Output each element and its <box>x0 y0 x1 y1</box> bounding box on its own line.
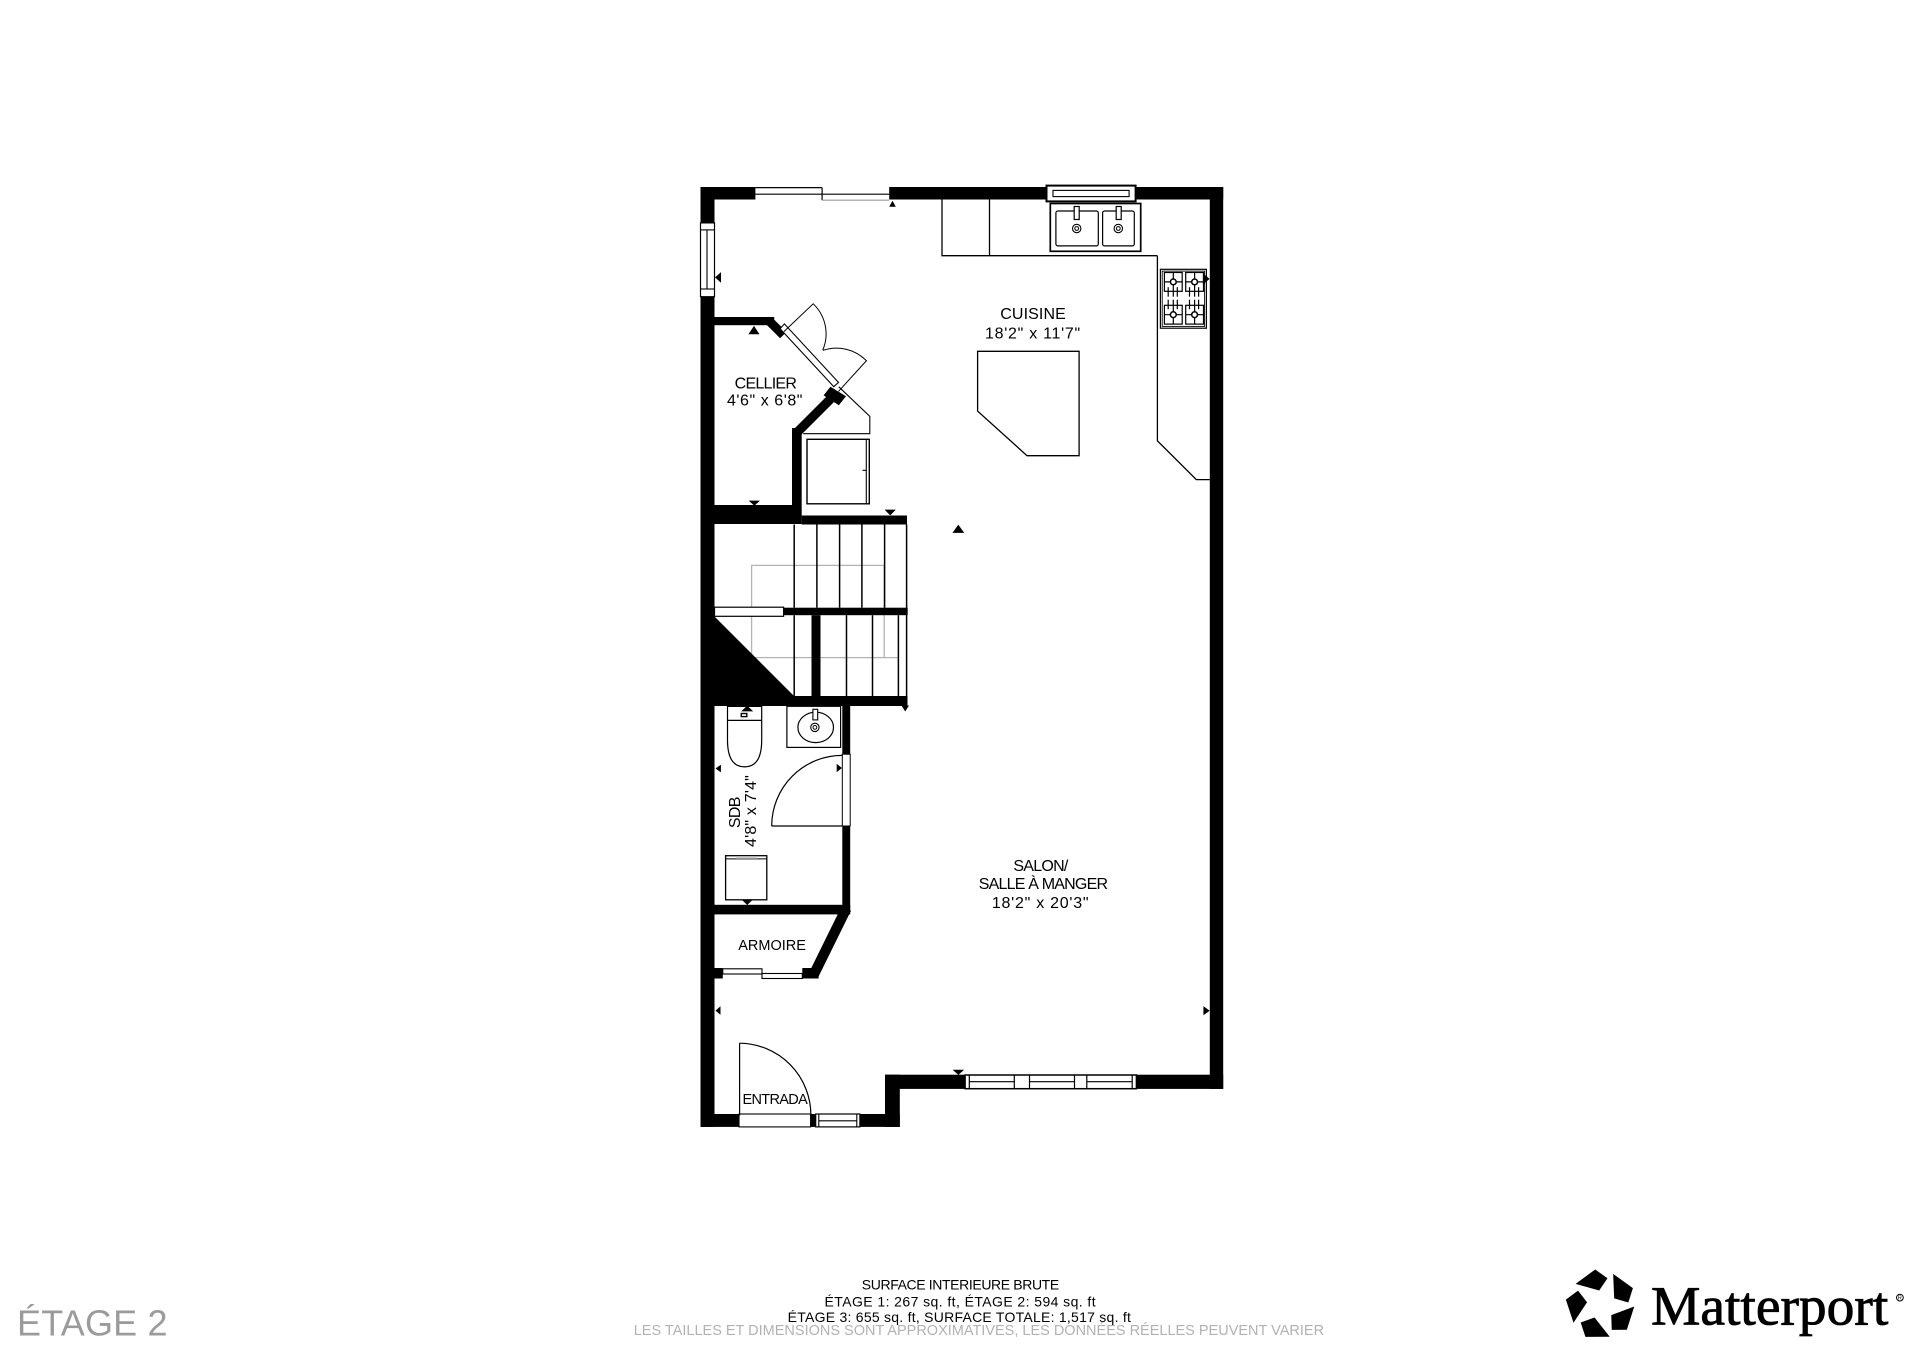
svg-text:SALON/: SALON/ <box>1013 858 1069 875</box>
svg-text:ÉTAGE 2: ÉTAGE 2 <box>17 1303 168 1344</box>
svg-text:CELLIER: CELLIER <box>735 375 797 392</box>
svg-text:SDB: SDB <box>727 797 744 828</box>
svg-text:ARMOIRE: ARMOIRE <box>738 938 806 954</box>
svg-text:18'2" x 11'7": 18'2" x 11'7" <box>985 325 1081 342</box>
svg-text:ENTRADA: ENTRADA <box>742 1092 808 1108</box>
svg-text:SURFACE INTERIEURE BRUTE: SURFACE INTERIEURE BRUTE <box>862 1277 1059 1293</box>
svg-text:18'2" x 20'3": 18'2" x 20'3" <box>992 895 1089 912</box>
svg-text:Matterport: Matterport <box>1651 1276 1889 1337</box>
svg-text:R: R <box>1898 1296 1902 1302</box>
svg-text:CUISINE: CUISINE <box>1000 306 1066 323</box>
svg-text:LES TAILLES ET DIMENSIONS SONT: LES TAILLES ET DIMENSIONS SONT APPROXIMA… <box>634 1322 1324 1339</box>
svg-text:4'6" x 6'8": 4'6" x 6'8" <box>727 393 803 410</box>
svg-text:ÉTAGE 1: 267 sq. ft, ÉTAGE 2:: ÉTAGE 1: 267 sq. ft, ÉTAGE 2: 594 sq. ft <box>825 1293 1097 1309</box>
svg-text:4'8" x 7'4": 4'8" x 7'4" <box>743 775 760 847</box>
svg-text:SALLE À MANGER: SALLE À MANGER <box>979 874 1108 893</box>
